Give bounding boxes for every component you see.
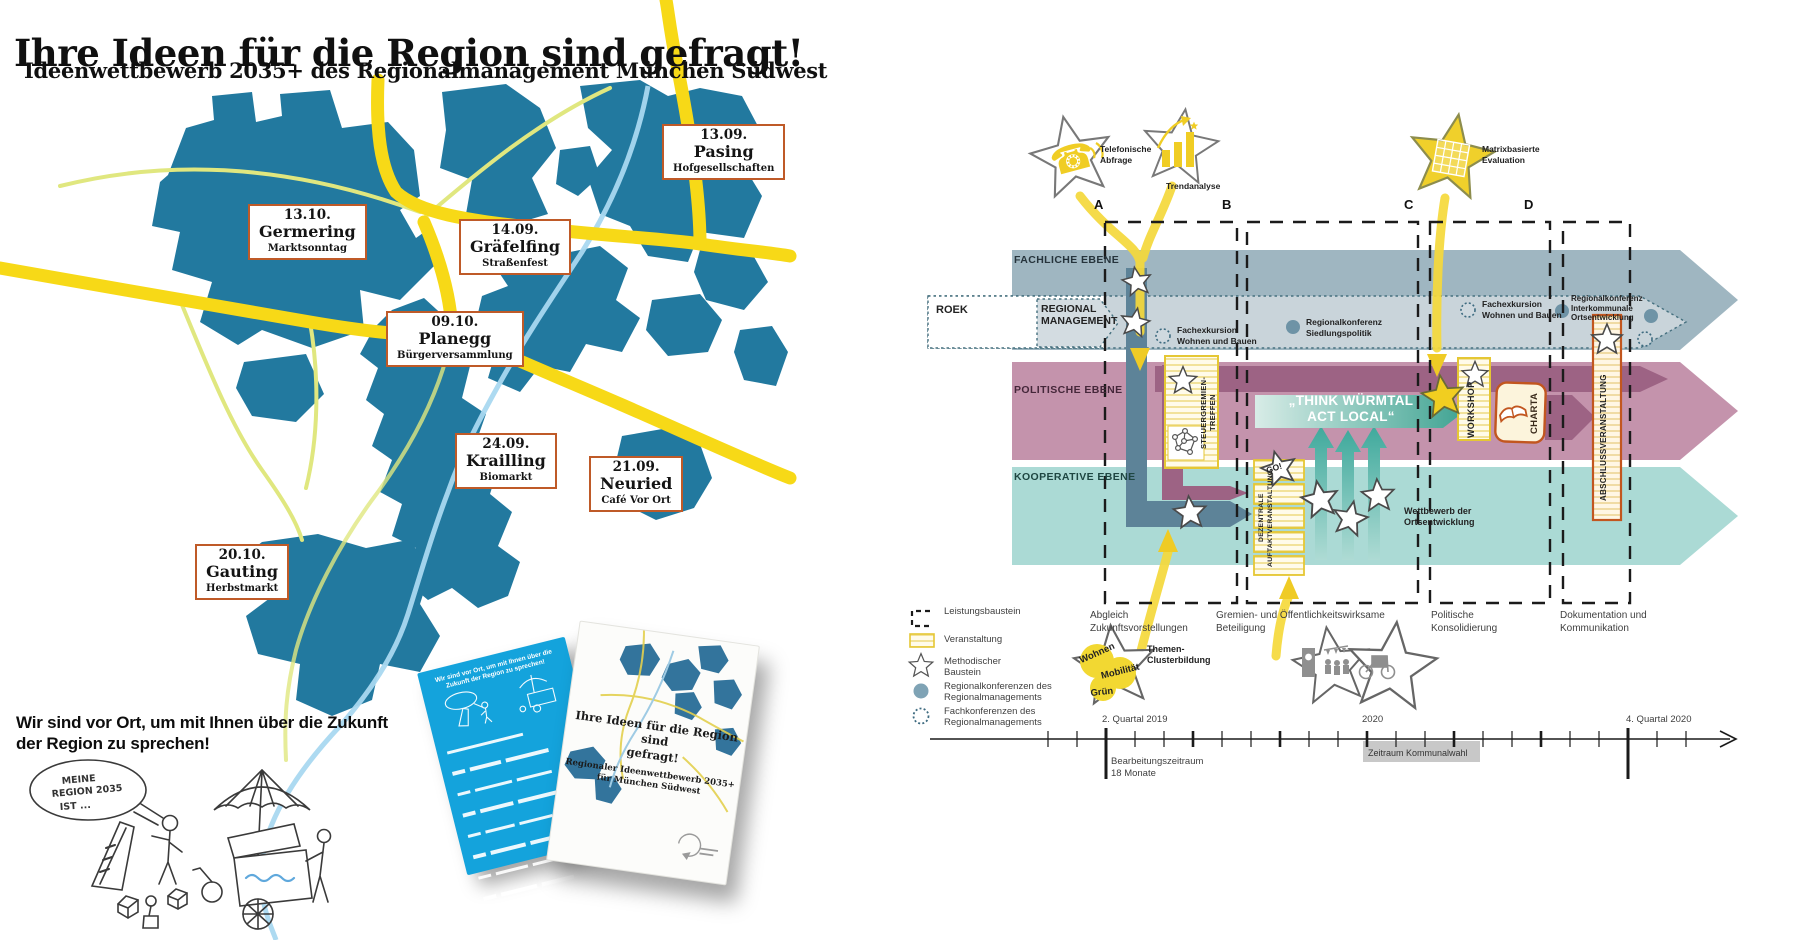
- label-dezentrale-auftaktveranstaltung: DEZENTRALE AUFTAKTVERANSTALTUNG: [1257, 462, 1275, 574]
- legend-methodischer-baustein: Methodischer Baustein: [944, 656, 1001, 678]
- map-event-gauting: 20.10. Gauting Herbstmarkt: [195, 544, 289, 600]
- flyer-photo: Wir sind vor Ort, um mit Ihnen über die …: [430, 632, 800, 937]
- label-steuergremien-treffen: STEUERGREMIEN-TREFFEN: [1199, 360, 1217, 466]
- label-themen-clusterbildung: Themen- Clusterbildung: [1147, 644, 1211, 665]
- fachkonferenz-dotted-circle: [1638, 332, 1652, 346]
- map-event-krailling: 24.09. Krailling Biomarkt: [455, 433, 557, 489]
- legend-regionalkonferenzen: Regionalkonferenzen des Regionalmanageme…: [944, 681, 1052, 703]
- label-think-wuermtal: „THINK WÜRMTAL ACT LOCAL“: [1258, 393, 1444, 425]
- label-fachexkursion-2: Fachexkursion Wohnen und Bauen: [1482, 299, 1562, 320]
- poster-subtitle: Ideenwettbewerb 2035+ des Regionalmanage…: [24, 58, 827, 83]
- legend-veranstaltung: Veranstaltung: [944, 634, 1002, 645]
- timeline-kommunalwahl: Zeitraum Kommunalwahl: [1368, 747, 1468, 759]
- label-roek: ROEK: [936, 304, 968, 316]
- column-B: B: [1222, 199, 1231, 211]
- poster-root: MEINE REGION 2035 IST ... Ihre Ideen für…: [0, 0, 1800, 940]
- politik-strip-arrow: [1155, 366, 1668, 392]
- matrix-grid-icon: [1432, 139, 1469, 176]
- label-regionalkonferenz-ortsentwicklung: Regionalkonferenz Interkommunale Ortsent…: [1571, 294, 1643, 323]
- column-D: D: [1524, 199, 1533, 211]
- label-charta: CHARTA: [1529, 391, 1540, 435]
- legend-dotted-circle-icon: [914, 709, 929, 724]
- svg-text:IST ...: IST ...: [59, 800, 91, 813]
- legend-dashed-box-icon: [912, 611, 930, 626]
- timeline: [930, 728, 1736, 779]
- legend-filled-dot-icon: [914, 684, 929, 699]
- map-event-pasing: 13.09. Pasing Hofgesellschaften: [662, 124, 785, 180]
- phase-beteiligung: Gremien- und Öffentlichkeitswirksame Bet…: [1216, 610, 1385, 635]
- regionalkonferenz-dot: [1644, 309, 1658, 323]
- timeline-bearbeitungszeitraum: Bearbeitungszeitraum 18 Monate: [1111, 756, 1203, 780]
- label-gruen: Grün: [1090, 686, 1114, 700]
- person-with-sign-icon: [152, 816, 182, 885]
- map-event-planegg: 09.10. Planegg Bürgerversammlung: [386, 311, 524, 367]
- label-regionalkonferenz-siedlungspolitik: Regionalkonferenz Siedlungspolitik: [1306, 317, 1382, 338]
- label-fachexkursion-1: Fachexkursion Wohnen und Bauen: [1177, 325, 1257, 346]
- label-fachliche-ebene: FACHLICHE EBENE: [1014, 254, 1119, 266]
- phase-konsolidierung: Politische Konsolidierung: [1431, 610, 1497, 635]
- vor-ort-text: Wir sind vor Ort, um mit Ihnen über die …: [16, 712, 388, 755]
- label-trendanalyse: Trendanalyse: [1166, 181, 1220, 192]
- phase-abgleich: Abgleich Zukunftsvorstellungen: [1090, 610, 1188, 635]
- fachkonferenz-dotted-circle: [1156, 329, 1170, 343]
- label-workshop: WORKSHOP: [1466, 390, 1476, 438]
- legend-leistungsbaustein: Leistungsbaustein: [944, 606, 1021, 617]
- infostand-icon: [1302, 648, 1315, 677]
- map-event-neuried: 21.09. Neuried Café Vor Ort: [589, 456, 683, 512]
- process-diagram: ☎: [900, 0, 1800, 940]
- flyer-front-white: Ihre Ideen für die Region sind gefragt! …: [546, 621, 760, 886]
- regionalkonferenz-dot: [1286, 320, 1300, 334]
- fachkonferenz-dotted-circle: [1461, 303, 1475, 317]
- timeline-q-start: 2. Quartal 2019: [1102, 714, 1168, 726]
- legend-veranstaltung-icon: [910, 634, 934, 647]
- label-matrixbasierte-evaluation: Matrixbasierte Evaluation: [1482, 144, 1540, 165]
- timeline-year-mid: 2020: [1362, 714, 1383, 726]
- label-politische-ebene: POLITISCHE EBENE: [1014, 384, 1123, 396]
- label-kooperative-ebene: KOOPERATIVE EBENE: [1014, 471, 1136, 483]
- boxes-icon: [118, 889, 187, 928]
- label-abschlussveranstaltung: ABSCHLUSSVERANSTALTUNG: [1599, 362, 1608, 514]
- map-poster: MEINE REGION 2035 IST ... Ihre Ideen für…: [0, 0, 900, 940]
- phase-dokumentation: Dokumentation und Kommunikation: [1560, 610, 1647, 635]
- column-A: A: [1094, 199, 1103, 211]
- a-frame-sign-icon: [92, 822, 134, 890]
- cargo-bike-icon: [193, 824, 312, 929]
- label-wettbewerb-ortsentwicklung: Wettbewerb der Ortsentwicklung: [1404, 506, 1475, 528]
- label-regional-management: REGIONAL MANAGEMENT: [1041, 303, 1117, 327]
- timeline-q-end: 4. Quartal 2020: [1626, 714, 1692, 726]
- map-event-graefelfing: 14.09. Gräfelfing Straßenfest: [459, 219, 571, 275]
- process-diagram-art: ☎: [900, 0, 1800, 940]
- column-C: C: [1404, 199, 1413, 211]
- label-telefonische-abfrage: Telefonische Abfrage: [1100, 144, 1151, 165]
- legend-fachkonferenzen: Fachkonferenzen des Regionalmanagements: [944, 706, 1042, 728]
- legend-star-icon: [909, 654, 933, 676]
- map-event-germering: 13.10. Germering Marktsonntag: [248, 204, 367, 260]
- flyer-logo-icon: [677, 833, 720, 863]
